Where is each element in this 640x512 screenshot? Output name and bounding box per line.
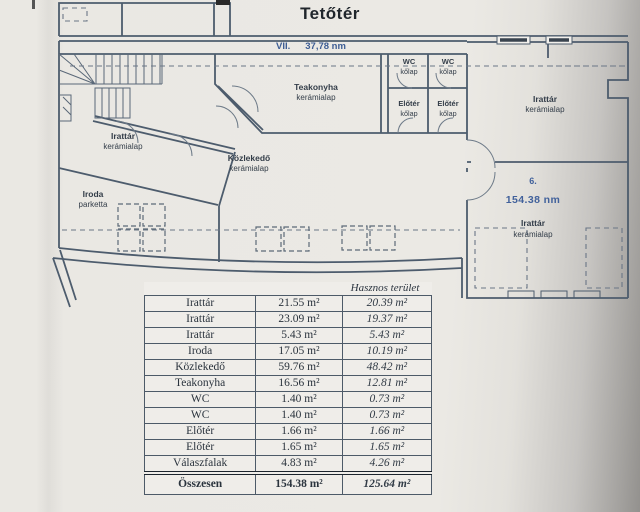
table-row: Előtér 1.65 m² 1.65 m² <box>145 440 432 456</box>
gross-area-cell: 17.05 m² <box>256 344 342 360</box>
table-row: Irattár 5.43 m² 5.43 m² <box>145 328 432 344</box>
net-area-cell: 0.73 m² <box>342 408 431 424</box>
net-area-cell: 19.37 m² <box>342 312 431 328</box>
gross-area-cell: 59.76 m² <box>256 360 342 376</box>
net-area-cell: 1.66 m² <box>342 424 431 440</box>
room-label-wc1: WC kőlap <box>391 57 427 76</box>
net-area-cell: 20.39 m² <box>342 296 431 312</box>
table-row: WC 1.40 m² 0.73 m² <box>145 392 432 408</box>
room-name-cell: Teakonyha <box>145 376 256 392</box>
corridor-label: VII. 37,78 nm <box>276 41 346 52</box>
room-name-cell: Irattár <box>145 312 256 328</box>
net-area-cell: 0.73 m² <box>342 392 431 408</box>
room-name-cell: Előtér <box>145 424 256 440</box>
page-title: Tetőtér <box>262 4 398 24</box>
room-label-unit6: 6. 154.38 nm Irattár kerámialap <box>486 176 580 239</box>
total-net-cell: 125.64 m² <box>342 473 431 495</box>
corridor-area: 37,78 nm <box>305 41 346 52</box>
room-name-cell: Iroda <box>145 344 256 360</box>
room-name-cell: WC <box>145 408 256 424</box>
gross-area-cell: 21.55 m² <box>256 296 342 312</box>
net-area-header: Hasznos terület <box>341 282 429 295</box>
gross-area-cell: 1.40 m² <box>256 392 342 408</box>
gross-area-cell: 5.43 m² <box>256 328 342 344</box>
room-label-wc2: WC kőlap <box>430 57 466 76</box>
area-table-body: Irattár 21.55 m² 20.39 m² Irattár 23.09 … <box>145 296 432 474</box>
furniture <box>118 204 395 251</box>
table-row: Iroda 17.05 m² 10.19 m² <box>145 344 432 360</box>
room-label-irattar-top-right: Irattár kerámialap <box>505 94 585 115</box>
room-label-kozlekedo: Közlekedő kerámialap <box>208 153 290 174</box>
net-area-cell: 48.42 m² <box>342 360 431 376</box>
room-name-cell: Válaszfalak <box>145 456 256 474</box>
room-name-cell: WC <box>145 392 256 408</box>
room-name-cell: Irattár <box>145 328 256 344</box>
table-row: Közlekedő 59.76 m² 48.42 m² <box>145 360 432 376</box>
room-label-eloter1: Előtér kőlap <box>390 99 428 118</box>
room-label-irattar-left: Irattár kerámialap <box>83 131 163 152</box>
total-gross-cell: 154.38 m² <box>256 473 342 495</box>
corridor-number: VII. <box>276 41 290 52</box>
room-label-eloter2: Előtér kőlap <box>429 99 467 118</box>
room-label-teakonyha: Teakonyha kerámialap <box>268 82 364 103</box>
room-label-iroda: Iroda parketta <box>58 189 128 210</box>
net-area-cell: 1.65 m² <box>342 440 431 456</box>
gross-area-cell: 4.83 m² <box>256 456 342 474</box>
room-name-cell: Előtér <box>145 440 256 456</box>
table-row: Válaszfalak 4.83 m² 4.26 m² <box>145 456 432 474</box>
scanned-floorplan-page: Tetőtér VII. 37,78 nm Teakonyha kerámial… <box>0 0 640 512</box>
gross-area-cell: 1.66 m² <box>256 424 342 440</box>
net-area-cell: 4.26 m² <box>342 456 431 474</box>
net-area-cell: 12.81 m² <box>342 376 431 392</box>
table-row: Irattár 23.09 m² 19.37 m² <box>145 312 432 328</box>
net-area-cell: 5.43 m² <box>342 328 431 344</box>
gross-area-cell: 1.40 m² <box>256 408 342 424</box>
gross-area-cell: 23.09 m² <box>256 312 342 328</box>
table-row: Teakonyha 16.56 m² 12.81 m² <box>145 376 432 392</box>
net-area-cell: 10.19 m² <box>342 344 431 360</box>
gross-area-cell: 1.65 m² <box>256 440 342 456</box>
table-row: WC 1.40 m² 0.73 m² <box>145 408 432 424</box>
table-row: Előtér 1.66 m² 1.66 m² <box>145 424 432 440</box>
area-table: Hasznos terület Irattár 21.55 m² 20.39 m… <box>144 282 432 495</box>
stairs <box>59 54 162 121</box>
room-name-cell: Irattár <box>145 296 256 312</box>
total-row: Összesen 154.38 m² 125.64 m² <box>145 473 432 495</box>
gross-area-cell: 16.56 m² <box>256 376 342 392</box>
total-label-cell: Összesen <box>145 473 256 495</box>
table-row: Irattár 21.55 m² 20.39 m² <box>145 296 432 312</box>
room-name-cell: Közlekedő <box>145 360 256 376</box>
